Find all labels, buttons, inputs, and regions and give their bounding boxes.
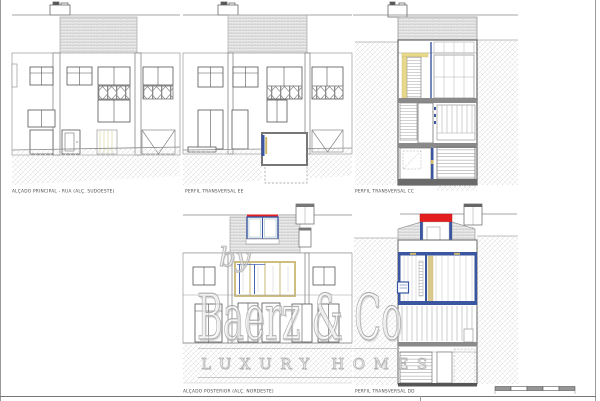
drawing-perfil-cc [350,2,520,194]
lower-floor [398,349,477,383]
drawing-label-alcado-posterior: ALÇADO POSTERIOR (ALÇ. NORDESTE) [183,389,274,394]
floor-slab [398,98,477,103]
drawing-perfil-dd [350,201,520,393]
ground-hatch-left [355,42,398,185]
stair-flight [407,57,421,98]
roof-hatch [398,17,477,42]
drawing-label-perfil-cc: PERFIL TRANSVERSAL CC [355,189,414,194]
door [418,103,433,143]
mid-floor [400,103,475,143]
chimney-icon [218,2,238,15]
scale-bar [494,385,578,395]
door [437,352,452,383]
blue-wall-cut [262,135,265,156]
ground-hatch-left [354,238,398,385]
foundation-slab [398,179,477,185]
stair-section [400,103,417,140]
drawing-label-perfil-ee: PERFIL TRANSVERSAL EE [185,189,244,194]
drawing-alcado-posterior [181,201,353,393]
drawing-label-perfil-dd: PERFIL TRANSVERSAL DD [355,389,415,394]
red-roof-edge [247,215,278,217]
yellow-stair-stringer [402,57,407,98]
garage-section [437,147,475,179]
drawing-perfil-ee [181,2,354,192]
dormer [246,215,279,245]
lower-floor [400,147,475,179]
ground-hatch [12,147,180,185]
chimney-icon [50,2,70,15]
ground-hatch-right [477,236,518,384]
roof-hatch-left [398,222,421,240]
yellow-stair-landing [402,53,428,57]
drawing-alcado-principal [8,2,184,192]
ground-hatch [183,343,352,383]
blue-fixture [398,282,409,293]
floor-slab [398,342,477,347]
ladder [419,261,423,296]
yellow-finish-cut [265,137,267,154]
foundation-slab [398,383,477,387]
sheet-border-left [0,0,1,401]
roof-hatch [228,15,307,53]
fold-mark [420,396,421,401]
large-rear-window [235,262,295,296]
red-parapet-cut [420,214,452,222]
ground-hatch-right [477,40,518,185]
roof-hatch [60,17,137,54]
drawing-sheet: ALÇADO PRINCIPAL - RUA (ALÇ. SUDOESTE) P… [0,0,600,401]
tan-wall-finish [428,256,433,301]
garage-slats [400,352,432,383]
drawing-label-alcado-principal: ALÇADO PRINCIPAL - RUA (ALÇ. SUDOESTE) [12,189,115,194]
hatched-cut [454,349,475,383]
sheet-border-right [595,0,596,401]
hatch-under-garage [437,185,477,191]
dormer-sill [246,239,279,244]
sheet-border-bottom [0,396,596,397]
